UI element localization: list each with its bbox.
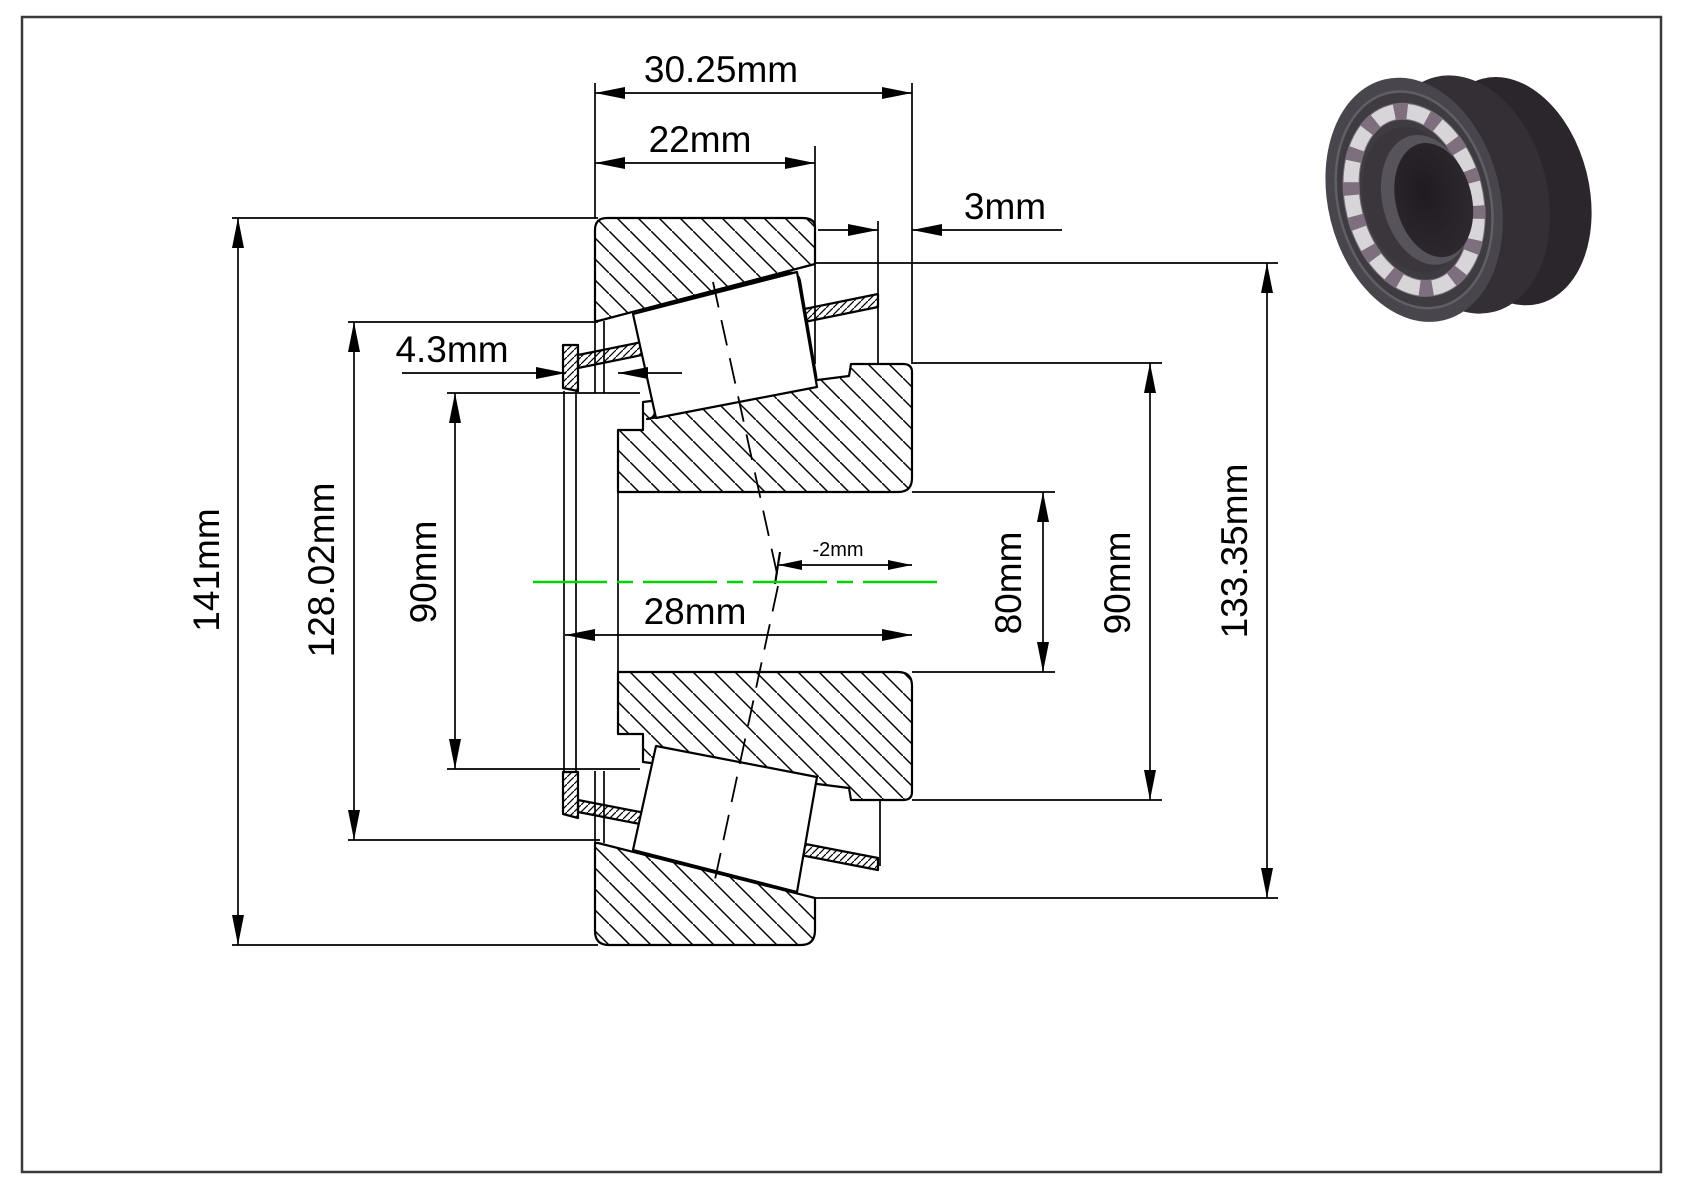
dim-flange-od: 141mm (186, 218, 244, 945)
drawing-page: 30.25mm 22mm 3mm 4.3mm 28mm -2mm (0, 0, 1684, 1191)
dim-label-bore-diameter: 80mm (988, 532, 1029, 635)
dim-label-cup-width: 22mm (649, 119, 752, 160)
dim-label-total-width: 30.25mm (644, 49, 798, 90)
dim-label-flange-back-od: 128.02mm (301, 483, 342, 658)
dim-label-back-rib-od: 90mm (1097, 532, 1138, 635)
bearing-3d-image (1301, 37, 1615, 347)
dim-flange-back-od: 128.02mm (301, 322, 360, 840)
dim-back-protrusion: 3mm (818, 186, 1062, 236)
bearing-technical-drawing: 30.25mm 22mm 3mm 4.3mm 28mm -2mm (0, 0, 1684, 1191)
dim-label-flange-od: 141mm (186, 508, 227, 631)
dim-bore-diameter: 80mm (988, 492, 1049, 672)
bearing-section (533, 218, 940, 945)
dim-total-width: 30.25mm (595, 49, 912, 99)
dim-cup-width: 22mm (595, 119, 815, 169)
dim-label-back-protrusion: 3mm (964, 186, 1046, 227)
dim-label-cup-od: 133.35mm (1214, 464, 1255, 639)
dim-label-front-rib-od: 90mm (403, 521, 444, 624)
dim-cup-od: 133.35mm (1214, 263, 1273, 898)
dim-cone-width: 28mm (565, 591, 912, 641)
dim-back-rib-od: 90mm (1097, 363, 1156, 800)
dim-label-front-protrusion: 4.3mm (395, 329, 508, 370)
dim-label-cone-width: 28mm (644, 591, 747, 632)
dim-label-effective-center: -2mm (812, 539, 863, 561)
dim-effective-center: -2mm (778, 539, 912, 570)
dim-front-rib-od: 90mm (403, 393, 461, 769)
